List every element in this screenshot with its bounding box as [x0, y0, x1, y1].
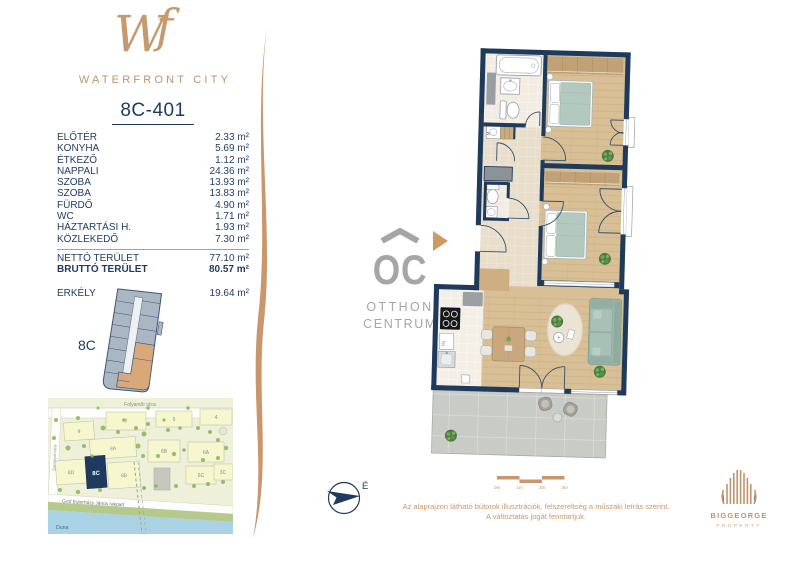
bed — [545, 74, 593, 134]
area-row: KÖZLEKEDŐ7.30 m² — [57, 234, 249, 245]
map-building-label: 8D — [68, 470, 75, 476]
dining-table — [492, 327, 525, 362]
unit-panel: 8C-401 ELŐTÉR2.33 m² KONYHA5.69 m² ÉTKEZ… — [57, 100, 249, 299]
biggeorge-bars-icon — [722, 470, 756, 504]
sofa — [588, 298, 622, 365]
building-mini-plan: 8C — [64, 286, 184, 398]
chair — [481, 329, 492, 339]
roundabout — [219, 427, 227, 435]
map-building-label: 6B — [161, 449, 168, 455]
building-label: 8C — [78, 337, 96, 353]
gross-area-row: BRUTTÓ TERÜLET80.57 m² — [57, 264, 249, 275]
entrance-opening — [475, 225, 481, 251]
compass-icon: É — [320, 474, 374, 524]
ribbon-swoosh-icon — [246, 26, 286, 538]
bathroom-cabinet — [486, 72, 496, 104]
area-row: FÜRDŐ4.90 m² — [57, 200, 249, 211]
disclaimer-line2: A változtatás jogát fenntartjuk. — [388, 512, 684, 522]
scale-label: 0m — [494, 485, 501, 490]
map-highlight-label: 8C — [92, 471, 101, 478]
storage-closet — [484, 166, 512, 181]
kitchen-sink — [438, 351, 455, 367]
sink — [500, 78, 519, 95]
appliance-label: Mg — [440, 341, 445, 347]
unit-title: 8C-401 — [57, 100, 249, 125]
outdoor-table — [553, 413, 562, 422]
biggeorge-logo: BIGGEORGE PROPERTY — [697, 460, 783, 538]
area-row: WC1.71 m² — [57, 211, 249, 222]
brand-name: WATERFRONT CITY — [70, 74, 240, 86]
wc-room — [483, 181, 510, 221]
chair — [525, 347, 536, 357]
area-row: NAPPALI24.36 m² — [57, 166, 249, 177]
area-row: ELŐTÉR2.33 m² — [57, 132, 249, 143]
scale-label: 2m — [539, 485, 546, 490]
balcony-terrace — [431, 390, 607, 458]
toilet — [487, 190, 498, 204]
location-map: Folyamőr utca Sorompó utca Gróf Esterház… — [48, 398, 233, 534]
washer-label: M — [486, 131, 491, 135]
biggeorge-name: BIGGEORGE — [710, 511, 767, 520]
toilet — [500, 101, 519, 120]
brand-logo: W f WATERFRONT CITY — [70, 4, 240, 86]
area-row: SZOBA13.83 m² — [57, 188, 249, 199]
net-area-row: NETTÓ TERÜLET77.10 m² — [57, 253, 249, 264]
map-building-label: 6C — [198, 473, 205, 479]
area-row: ÉTKEZŐ1.12 m² — [57, 155, 249, 166]
map-building-label: 8B — [121, 473, 128, 479]
doormat — [463, 292, 483, 307]
shelf — [500, 126, 513, 139]
area-row: KONYHA5.69 m² — [57, 143, 249, 154]
area-row: HÁZTARTÁSI H.1.93 m² — [57, 222, 249, 233]
bed — [542, 204, 588, 266]
map-building-label: 6A — [203, 450, 210, 456]
monogram-f: f — [156, 0, 173, 54]
building-outline — [102, 287, 167, 396]
waterfront-monogram-icon: W f — [70, 4, 240, 68]
area-divider — [57, 249, 249, 250]
street-top-label: Folyamőr utca — [124, 402, 156, 408]
map-building-label: 5 — [173, 417, 176, 423]
map-building-label: 8A — [110, 446, 117, 452]
balcony-rail — [628, 117, 635, 147]
river-label: Duna — [56, 525, 69, 531]
scale-bar: 0m 1m 2m 3m — [494, 472, 576, 492]
oc-roof-icon — [377, 228, 423, 243]
map-building-label: 4 — [215, 415, 218, 421]
north-label: É — [362, 481, 368, 492]
scale-label: 3m — [562, 485, 569, 490]
cooktop — [440, 307, 461, 330]
scale-label: 1m — [517, 485, 524, 490]
disclaimer: Az alaprajzon látható bútorok illusztrác… — [388, 502, 684, 521]
biggeorge-subtitle: PROPERTY — [716, 523, 762, 529]
chair — [481, 345, 492, 355]
chair — [525, 331, 536, 341]
washing-machine: M — [486, 125, 501, 138]
brochure-page: W f WATERFRONT CITY 8C-401 ELŐTÉR2.33 m²… — [0, 0, 800, 565]
map-highlighted-building: 8C — [85, 455, 107, 488]
floor-plan: M — [419, 37, 661, 473]
area-row: SZOBA13.93 m² — [57, 177, 249, 188]
disclaimer-line1: Az alaprajzon látható bútorok illusztrác… — [388, 502, 684, 512]
map-building-label: 3C — [220, 470, 227, 476]
